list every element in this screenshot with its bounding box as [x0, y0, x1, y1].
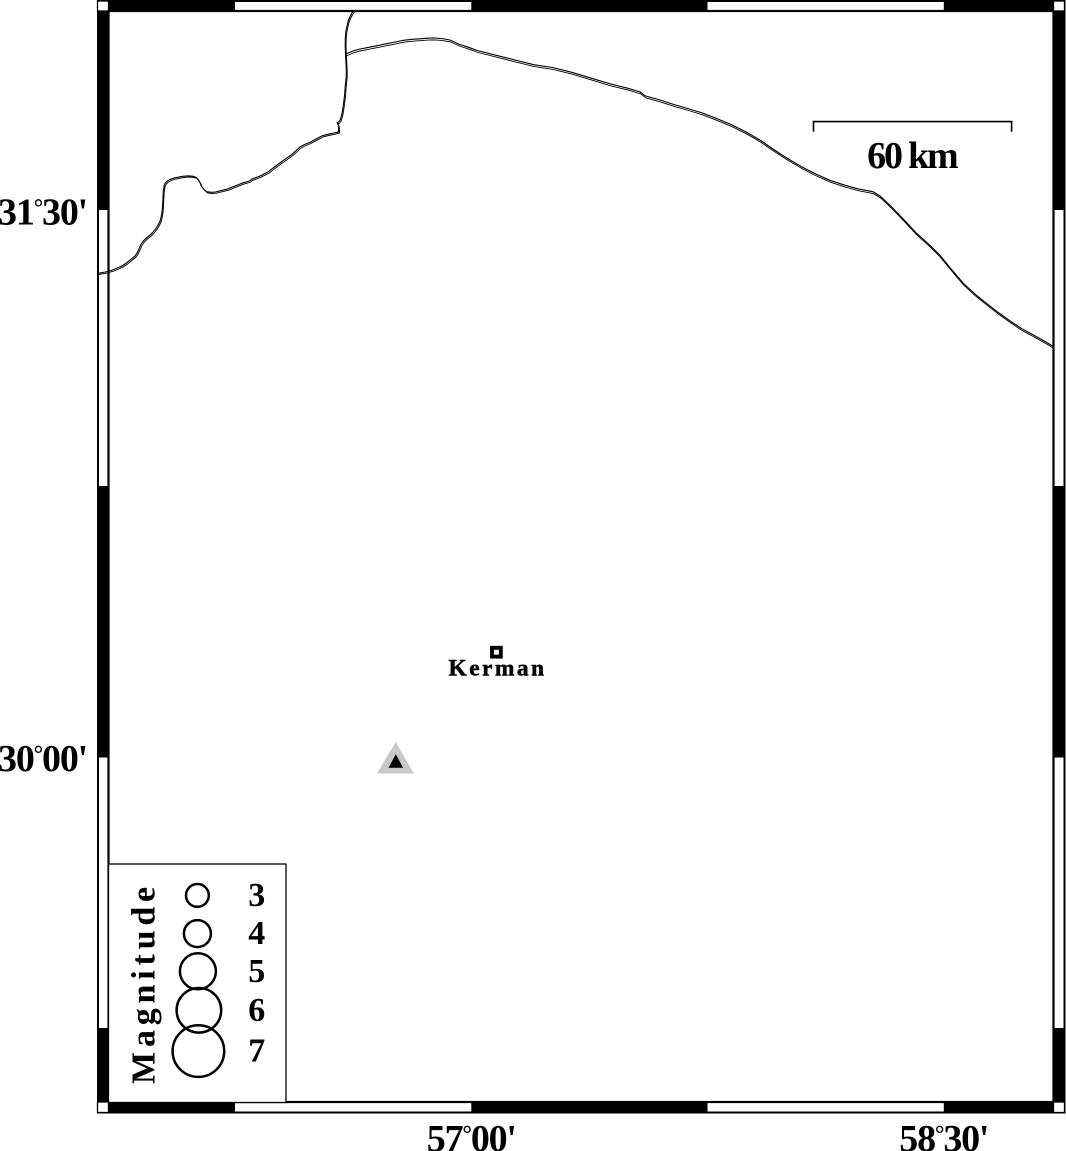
- svg-text:4: 4: [248, 915, 265, 952]
- svg-text:5: 5: [248, 953, 265, 990]
- svg-text:30°00': 30°00': [0, 738, 87, 780]
- svg-text:60 km: 60 km: [867, 135, 958, 177]
- svg-text:31°30': 31°30': [0, 191, 87, 233]
- svg-text:Kerman: Kerman: [449, 656, 547, 682]
- svg-text:3: 3: [248, 877, 265, 914]
- svg-text:Magnitude: Magnitude: [126, 882, 163, 1084]
- svg-text:7: 7: [248, 1033, 265, 1070]
- svg-text:58°30': 58°30': [899, 1118, 988, 1151]
- svg-text:57°00': 57°00': [427, 1118, 516, 1151]
- svg-text:6: 6: [248, 992, 265, 1029]
